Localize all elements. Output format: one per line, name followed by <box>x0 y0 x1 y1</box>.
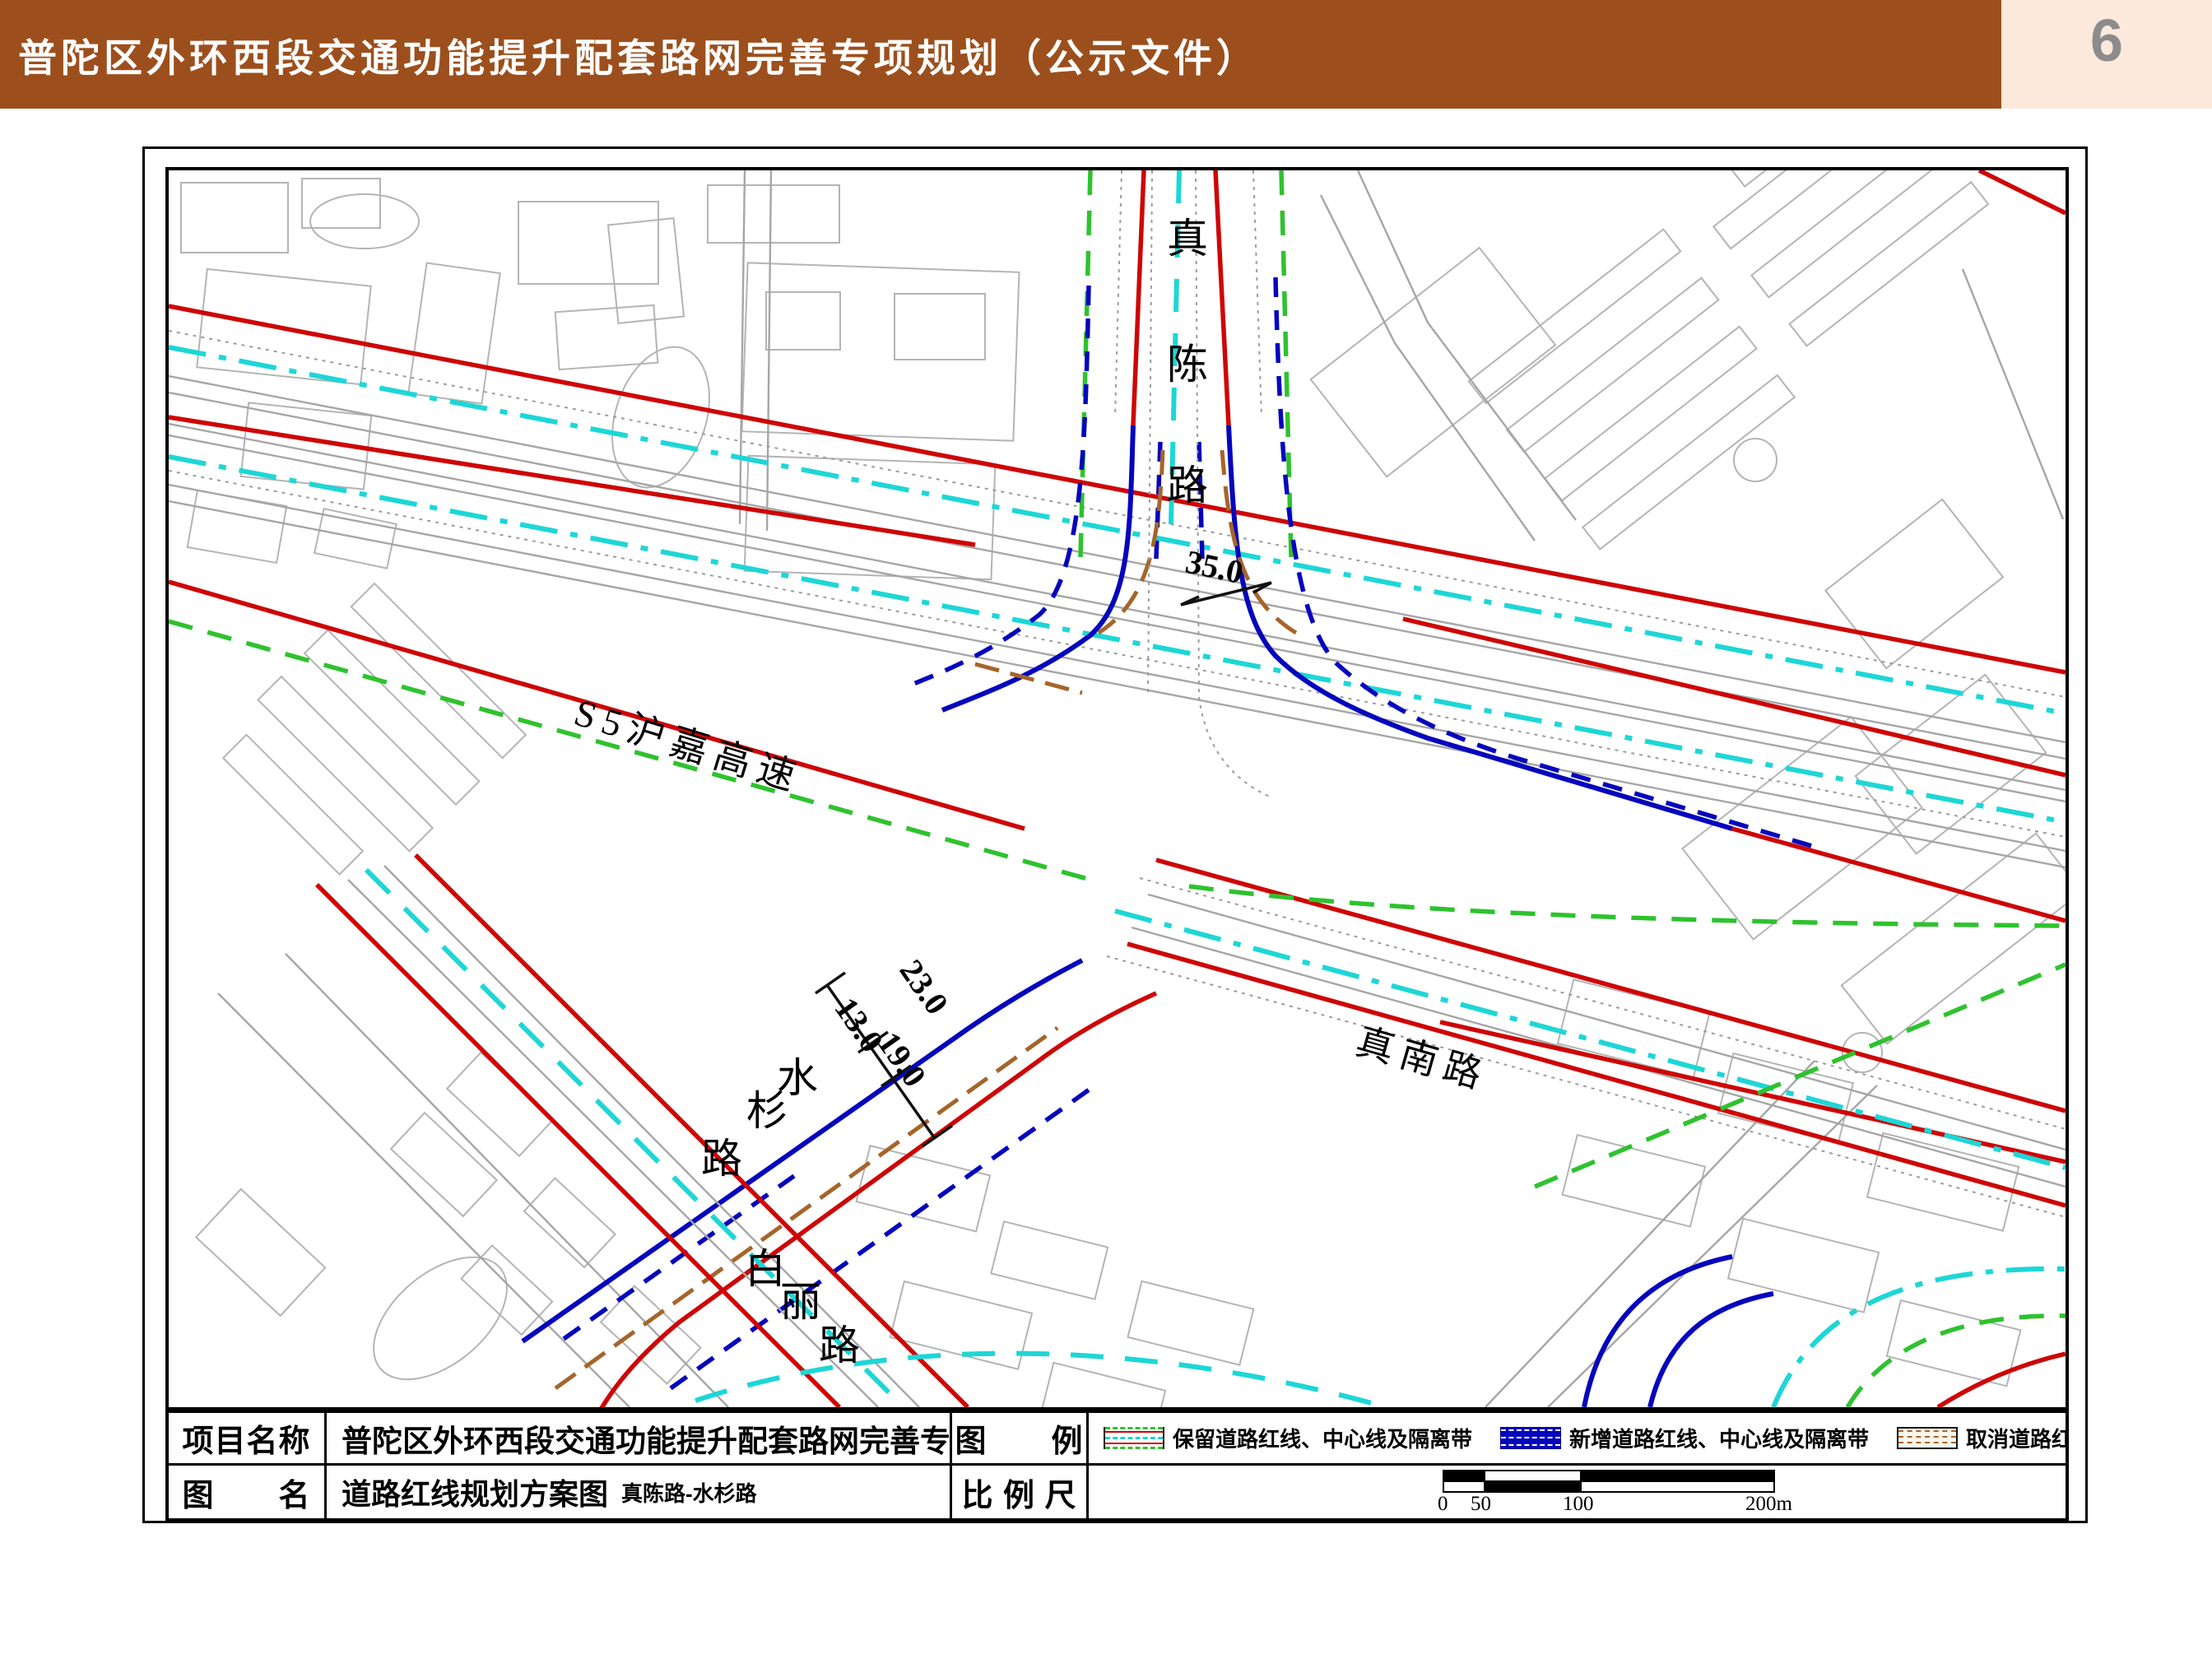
page-title: 普陀区外环西段交通功能提升配套路网完善专项规划（公示文件） <box>0 26 1259 83</box>
baili-road <box>317 855 968 1407</box>
legend-item-keep: 保留道路红线、中心线及隔离带 <box>1104 1423 1472 1453</box>
legend-text-cancel: 取消道路红线、中心线及隔离带 <box>1966 1423 2066 1453</box>
map-frame: 真 陈 路 S5沪嘉高速 真南路 水 杉 路 白 丽 路 35.0 23.0 1… <box>165 167 2069 1410</box>
label-shuishan-char3: 路 <box>701 1136 742 1182</box>
label-zhenchen-char2: 陈 <box>1167 342 1208 388</box>
centerline-cyan <box>1773 1269 2066 1407</box>
scale-tick-0: 0 <box>1438 1493 1448 1516</box>
legend-text-keep: 保留道路红线、中心线及隔离带 <box>1173 1423 1472 1453</box>
project-name-cell: 普陀区外环西段交通功能提升配套路网完善专项规划 <box>327 1413 952 1466</box>
label-baili-char3: 路 <box>819 1322 860 1369</box>
legend-swatch-cancel <box>1897 1427 1958 1449</box>
dim-shuishan-23: 23.0 <box>893 953 956 1021</box>
new-redline <box>1650 1294 1773 1407</box>
scale-label-cell: 比 例 尺 <box>952 1466 1089 1518</box>
label-zhenchen-char3: 路 <box>1167 462 1208 509</box>
scale-bar-graphic <box>1443 1470 1775 1493</box>
centerline-cyan <box>695 1354 1387 1407</box>
green-dashline <box>1281 170 1291 557</box>
drawing-subtitle: 真陈路-水杉路 <box>621 1477 757 1508</box>
keep-redline <box>416 855 968 1407</box>
edge-roads <box>695 170 2066 1407</box>
legend-swatch-keep <box>1104 1427 1164 1449</box>
legend-label-cell: 图 例 <box>952 1413 1089 1466</box>
drawing-name-cell: 道路红线规划方案图 真陈路-水杉路 <box>327 1466 952 1518</box>
keep-redline <box>1403 619 2066 775</box>
scale-tick-labels: 0 50 100 200m <box>1443 1493 1775 1514</box>
label-shuishan-char2: 杉 <box>746 1088 788 1134</box>
new-redline-dashed <box>909 286 1089 685</box>
scale-tick-100: 100 <box>1563 1493 1594 1516</box>
keep-redline <box>1215 170 1229 425</box>
buildings-layer <box>181 170 2066 1407</box>
legend-item-new: 新增道路红线、中心线及隔离带 <box>1500 1423 1869 1453</box>
planning-map: 真 陈 路 S5沪嘉高速 真南路 水 杉 路 白 丽 路 35.0 23.0 1… <box>169 170 2066 1407</box>
new-redline-dashed <box>1276 277 1815 847</box>
legend-cell: 保留道路红线、中心线及隔离带 新增道路红线、中心线及隔离带 取消道路红线、中心线… <box>1089 1413 2066 1466</box>
label-zhenchen-char1: 真 <box>1167 216 1208 262</box>
new-redline <box>942 425 1133 710</box>
drawing-name: 道路红线规划方案图 <box>327 1471 608 1513</box>
drawing-label-cell: 图 名 <box>169 1466 327 1518</box>
label-zhennan: 真南路 <box>1351 1020 1494 1099</box>
header-bar: 普陀区外环西段交通功能提升配套路网完善专项规划（公示文件） <box>0 0 2001 109</box>
scale-bar: 0 50 100 200m <box>1089 1470 1775 1514</box>
legend-swatch-new <box>1500 1427 1561 1449</box>
scale-tick-200: 200m <box>1745 1493 1792 1516</box>
centerline-cyan <box>169 457 2066 822</box>
label-baili-char2: 丽 <box>780 1279 821 1325</box>
page-number: 6 <box>2090 12 2123 71</box>
green-dashline <box>1535 964 2066 1187</box>
keep-redline <box>1938 1354 2066 1407</box>
scale-tick-50: 50 <box>1471 1493 1491 1516</box>
keep-redline <box>1732 829 2066 921</box>
legend-item-cancel: 取消道路红线、中心线及隔离带 <box>1897 1423 2066 1453</box>
zhenchen-road <box>909 170 2066 921</box>
new-redline <box>1229 425 1732 829</box>
legend-text-new: 新增道路红线、中心线及隔离带 <box>1569 1423 1869 1453</box>
keep-redline <box>1133 170 1144 425</box>
keep-redline <box>1979 170 2066 213</box>
minor-streets-layer <box>169 170 2066 1407</box>
project-label-cell: 项目名称 <box>169 1413 327 1466</box>
title-block-table: 项目名称 普陀区外环西段交通功能提升配套路网完善专项规划 图 例 保留道路红线、… <box>165 1410 2069 1522</box>
scale-cell: 0 50 100 200m <box>1089 1466 2066 1518</box>
centerline-cyan <box>169 347 2066 713</box>
page-number-box: 6 <box>2001 0 2212 109</box>
